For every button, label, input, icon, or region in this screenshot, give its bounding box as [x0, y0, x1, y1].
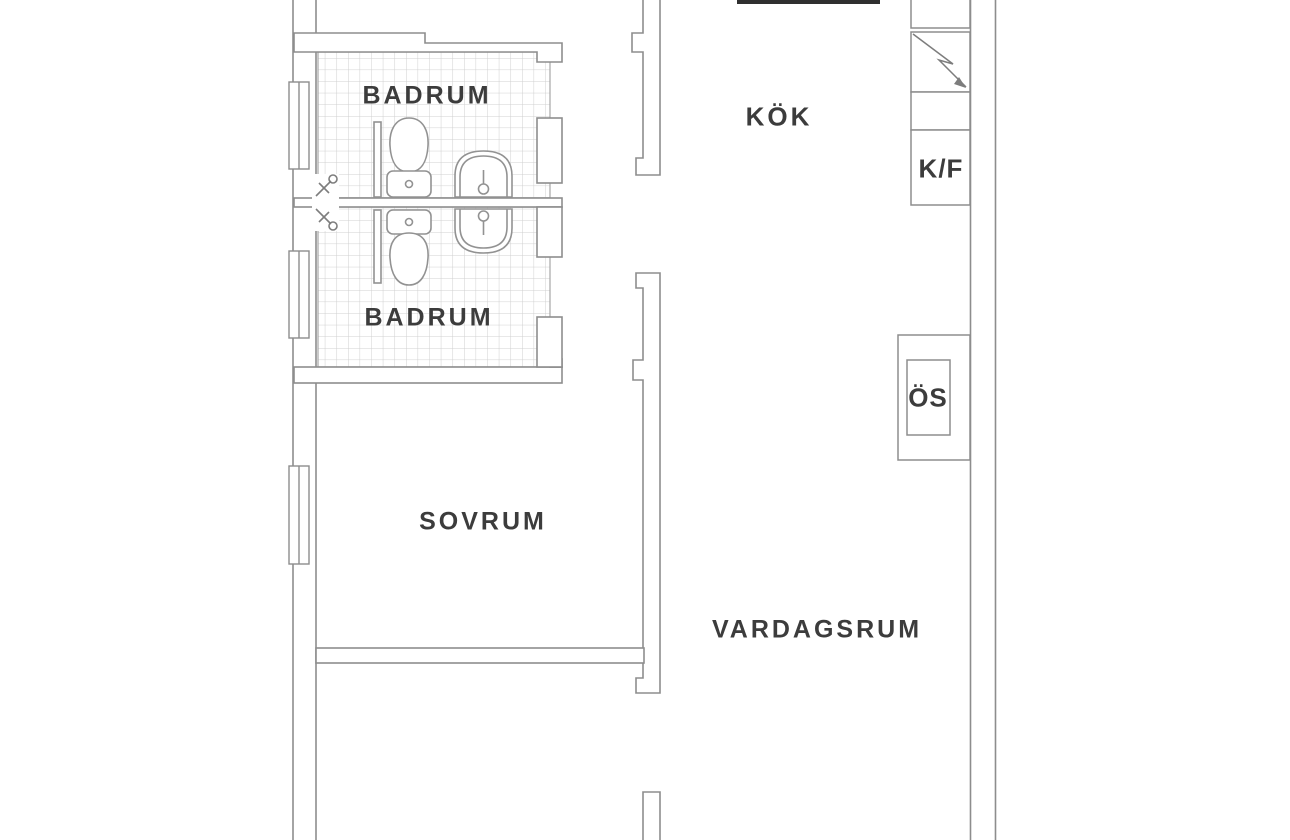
wall-bedroom-bottom	[316, 648, 644, 663]
shower-mixer-icon	[312, 174, 339, 199]
wall-bathroom-bottom	[294, 367, 562, 383]
windows	[289, 82, 309, 564]
toilet-icon	[387, 118, 431, 197]
kitchen-unit-middle	[911, 92, 970, 130]
shower-mixer-icon	[312, 206, 339, 231]
cabinet-label-os: ÖS	[908, 383, 948, 414]
window-icon	[289, 466, 309, 564]
wall-central-top-segment	[632, 0, 660, 175]
room-label-sovrum: SOVRUM	[419, 508, 547, 537]
bathroom-2-tiles	[318, 207, 550, 367]
room-label-badrum-1: BADRUM	[362, 82, 491, 111]
wall-central-middle-segment	[633, 273, 660, 693]
wall-central-bottom-segment	[643, 792, 660, 840]
partition-screen	[374, 210, 381, 283]
floor-plan-drawing	[0, 0, 1290, 840]
room-label-vardagsrum: VARDAGSRUM	[712, 616, 922, 645]
room-label-kok: KÖK	[746, 102, 813, 133]
sink-icon	[455, 151, 512, 197]
kitchen-unit-top	[911, 0, 970, 28]
wall-bathroom-east-jamb-3	[537, 317, 562, 367]
exterior-wall-right	[971, 0, 996, 840]
window-icon	[289, 251, 309, 338]
room-label-badrum-2: BADRUM	[364, 304, 493, 333]
bathroom-1-tiles	[318, 52, 550, 198]
cabinet-label-kf: K/F	[919, 154, 964, 185]
wall-bathroom-divider	[294, 198, 562, 207]
sink-icon	[455, 209, 512, 253]
wall-bathroom-east-jamb-1	[537, 118, 562, 183]
partition-screen	[374, 122, 381, 197]
cut-wall-bar	[737, 0, 880, 4]
floor-plan: BADRUM BADRUM KÖK K/F ÖS SOVRUM VARDAGSR…	[0, 0, 1290, 840]
window-icon	[289, 82, 309, 169]
toilet-icon	[387, 210, 431, 285]
wall-bathroom-east-jamb-2	[537, 207, 562, 257]
